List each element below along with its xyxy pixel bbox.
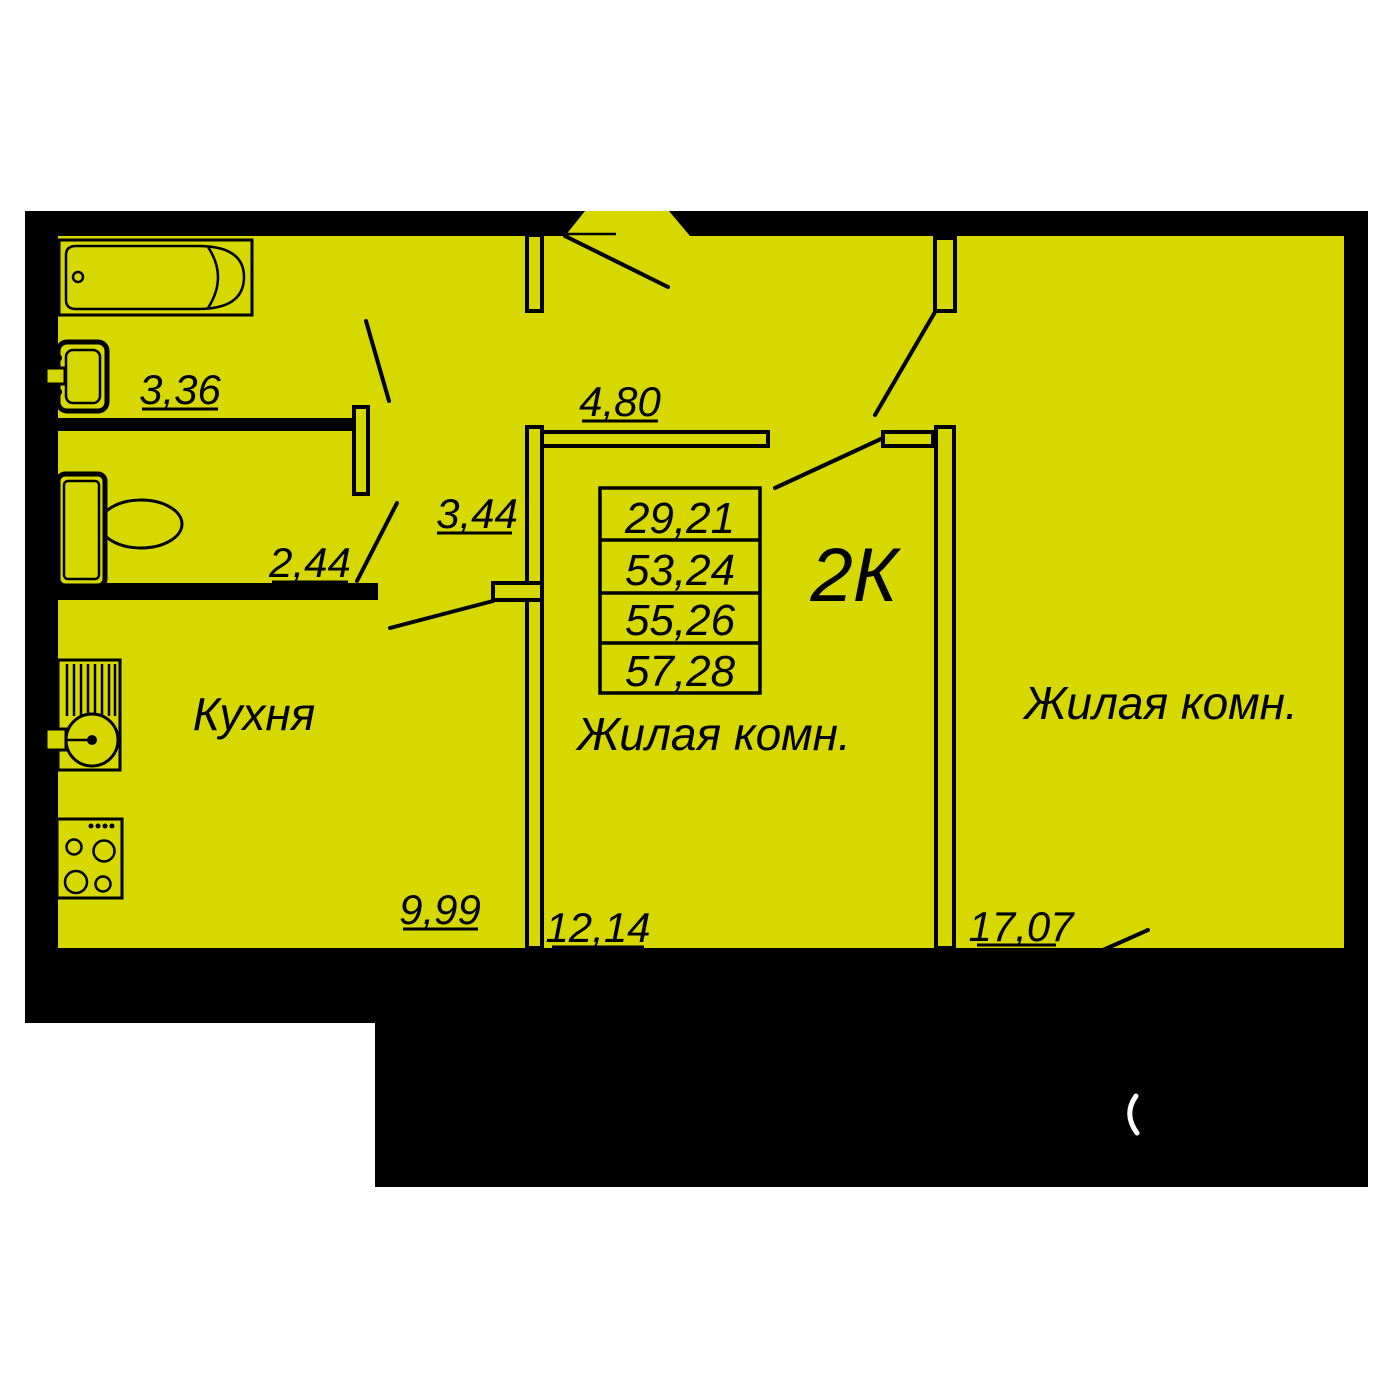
area-table-value-1: 29,21: [624, 494, 735, 543]
bathtub-outline: [59, 240, 252, 315]
area-table-value-2: 53,24: [625, 546, 735, 595]
kitchen-door-jamb: [493, 583, 542, 600]
hall-wall-stub-top: [527, 235, 542, 311]
right-wall: [1344, 211, 1368, 948]
area-table: 29,21 53,24 55,26 57,28: [600, 488, 760, 696]
area-value-living-right: 17,07: [968, 903, 1075, 950]
floor-plan-page: 29,21 53,24 55,26 57,28 2К Кухня Жилая к…: [0, 0, 1400, 1400]
washbasin-dot-bottom: [54, 388, 62, 396]
kitchen-partition-wall: [527, 427, 542, 948]
washbasin-tap: [46, 368, 65, 384]
top-wall: [25, 211, 1368, 236]
bathtub-icon: [59, 240, 252, 315]
area-value-toilet: 2,44: [268, 539, 351, 586]
area-value-hall-top: 4,80: [579, 378, 661, 425]
area-table-value-3: 55,26: [625, 596, 736, 645]
living-right-door-stub: [935, 238, 955, 311]
washbasin-dot-top: [54, 354, 62, 362]
area-value-kitchen: 9,99: [399, 886, 481, 933]
room-label-living-middle: Жилая комн.: [575, 708, 851, 760]
area-table-value-4: 57,28: [625, 647, 736, 696]
kitchen-sink-icon: [46, 660, 120, 770]
area-value-hall: 3,44: [436, 490, 518, 537]
neighbor-unit-mass: [375, 948, 1368, 1187]
sink-tap: [46, 729, 66, 750]
bathroom-divider-wall: [58, 418, 354, 431]
hall-horizontal-wall-right: [883, 432, 933, 446]
hall-horizontal-wall: [542, 432, 768, 446]
area-value-bathroom: 3,36: [139, 366, 221, 413]
living-partition-wall: [936, 427, 954, 948]
unit-type-label: 2К: [809, 533, 901, 618]
bottom-wall-left: [25, 948, 375, 1023]
stove-icon: [57, 819, 122, 898]
left-wall: [25, 211, 58, 1023]
area-value-living-middle: 12,14: [545, 904, 650, 951]
entrance-opening-floor: [565, 211, 690, 236]
toilet-bowl: [100, 500, 182, 548]
room-label-living-right: Жилая комн.: [1022, 677, 1298, 729]
bathroom-door-jamb: [354, 407, 368, 494]
room-label-kitchen: Кухня: [193, 688, 315, 740]
floor-plan-svg: 29,21 53,24 55,26 57,28 2К Кухня Жилая к…: [0, 0, 1400, 1400]
